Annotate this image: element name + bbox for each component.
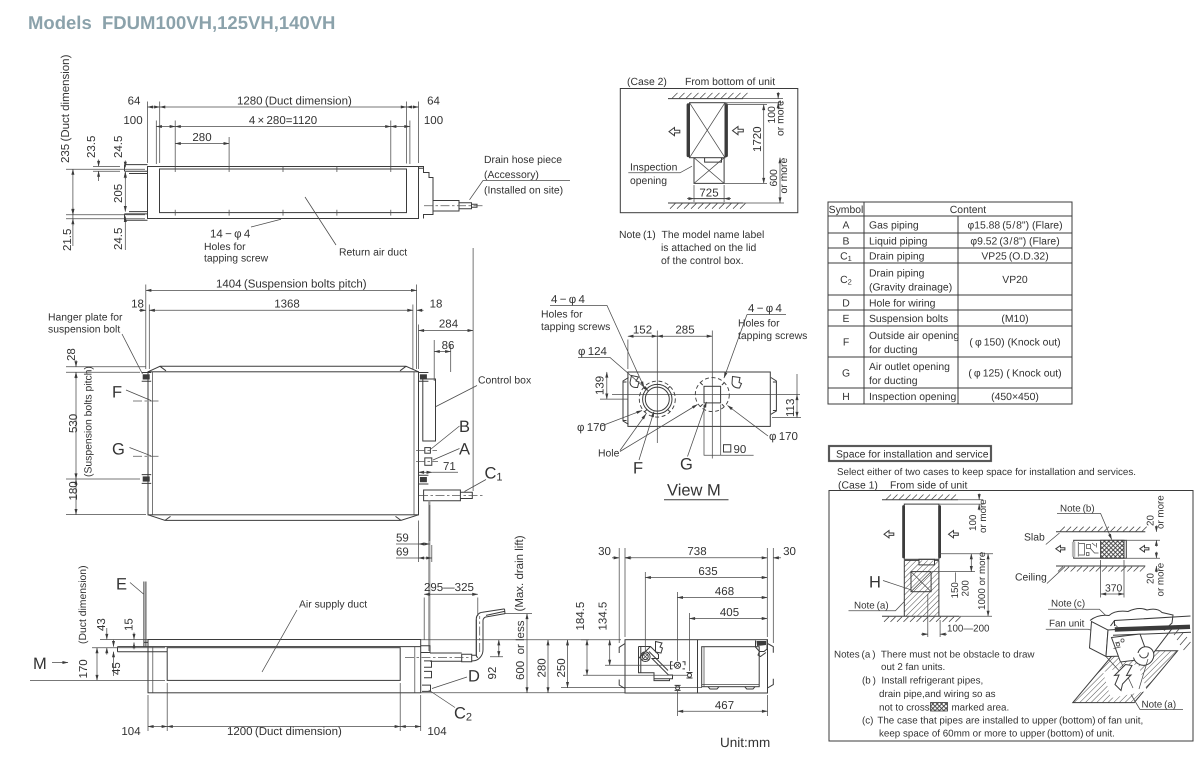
svg-text:From bottom of unit: From bottom of unit [685, 77, 775, 88]
svg-text:24.5: 24.5 [113, 136, 125, 158]
svg-text:Content: Content [950, 205, 987, 216]
svg-text:is attached on the lid: is attached on the lid [661, 243, 757, 254]
svg-text:69: 69 [396, 547, 409, 559]
svg-text:21.5: 21.5 [62, 229, 74, 251]
svg-text:or more: or more [1156, 562, 1167, 596]
svg-text:From side of unit: From side of unit [890, 481, 967, 492]
svg-text:1200 (Duct dimension): 1200 (Duct dimension) [227, 726, 342, 738]
svg-text:370: 370 [1105, 584, 1123, 595]
svg-text:for ducting: for ducting [869, 345, 918, 356]
svg-text:tapping screws: tapping screws [738, 331, 807, 342]
svg-text:φ 124: φ 124 [578, 346, 608, 358]
svg-text:(450×450): (450×450) [991, 392, 1039, 403]
svg-text:Drain hose piece: Drain hose piece [484, 155, 562, 166]
svg-text:(Suspension bolts pitch): (Suspension bolts pitch) [84, 366, 95, 477]
svg-text:100: 100 [123, 115, 142, 127]
svg-text:Drain piping: Drain piping [869, 252, 925, 263]
svg-text:B: B [459, 418, 470, 436]
svg-text:18: 18 [131, 299, 144, 311]
svg-text:280: 280 [537, 658, 549, 677]
svg-text:635: 635 [698, 566, 717, 578]
svg-text:tapping screws: tapping screws [541, 322, 610, 333]
svg-text:90: 90 [734, 444, 747, 456]
svg-text:1368: 1368 [274, 299, 300, 311]
svg-text:suspension bolt: suspension bolt [48, 325, 120, 336]
svg-text:View M: View M [667, 482, 721, 500]
svg-text:23.5: 23.5 [86, 136, 98, 158]
svg-text:Control box: Control box [478, 376, 532, 387]
svg-text:F: F [633, 460, 643, 478]
svg-text:250: 250 [556, 658, 568, 677]
svg-text:keep space of 60mm or more to: keep space of 60mm or more to upper (bot… [879, 729, 1115, 740]
svg-text:Gas piping: Gas piping [869, 221, 919, 232]
svg-text:64: 64 [427, 96, 440, 108]
svg-text:(M10): (M10) [1001, 314, 1028, 325]
svg-text:φ 170: φ 170 [577, 422, 606, 434]
svg-text:139: 139 [595, 376, 607, 395]
svg-text:28: 28 [66, 348, 78, 361]
svg-text:Drain piping: Drain piping [869, 269, 925, 280]
svg-text:405: 405 [720, 607, 739, 619]
svg-text:1404 (Suspension bolts pitch): 1404 (Suspension bolts pitch) [216, 279, 367, 291]
svg-text:A: A [843, 221, 850, 232]
svg-text:M: M [33, 655, 47, 673]
svg-text:( φ 125) ( Knock out): ( φ 125) ( Knock out) [968, 369, 1061, 380]
svg-text:C1: C1 [840, 252, 852, 264]
svg-text:D: D [842, 299, 850, 310]
svg-text:Air outlet opening: Air outlet opening [869, 362, 950, 373]
svg-text:Unit:mm: Unit:mm [720, 735, 770, 750]
svg-text:Models FDUM100VH,125VH,140VH: Models FDUM100VH,125VH,140VH [28, 12, 335, 33]
svg-text:104: 104 [427, 726, 447, 738]
svg-text:Fan unit: Fan unit [1049, 619, 1085, 630]
svg-text:134.5: 134.5 [598, 602, 610, 631]
svg-text:Air supply duct: Air supply duct [299, 600, 367, 611]
svg-text:or more: or more [779, 157, 790, 193]
svg-text:30: 30 [598, 546, 611, 558]
svg-text:B: B [843, 237, 850, 248]
svg-text:Suspension bolts: Suspension bolts [869, 314, 948, 325]
svg-text:180: 180 [68, 481, 80, 500]
svg-text:C2: C2 [840, 275, 852, 287]
svg-text:113: 113 [785, 399, 797, 417]
svg-text:64: 64 [128, 96, 141, 108]
svg-text:or more: or more [776, 100, 787, 136]
svg-text:530: 530 [68, 414, 80, 433]
svg-text:59: 59 [396, 533, 409, 545]
svg-text:Symbol: Symbol [829, 205, 864, 216]
svg-text:F: F [843, 338, 849, 349]
svg-text:725: 725 [699, 187, 718, 199]
svg-text:Note (b): Note (b) [1060, 504, 1095, 515]
svg-text:Slab: Slab [1024, 533, 1045, 544]
svg-text:tapping screw: tapping screw [204, 254, 269, 265]
svg-text:(Max. drain lift): (Max. drain lift) [514, 535, 526, 611]
svg-text:G: G [842, 369, 850, 380]
svg-text:104: 104 [121, 726, 141, 738]
svg-text:Hole: Hole [598, 449, 620, 460]
svg-text:Note (1) The model name label: Note (1) The model name label [619, 230, 764, 241]
svg-text:(Accessory): (Accessory) [484, 170, 539, 181]
svg-text:1720: 1720 [752, 126, 764, 152]
svg-text:H: H [869, 574, 881, 592]
svg-text:1280 (Duct dimension): 1280 (Duct dimension) [237, 96, 352, 108]
svg-text:235 (Duct dimension): 235 (Duct dimension) [60, 54, 72, 163]
svg-text:92: 92 [487, 667, 499, 680]
svg-text:(b ) Install refrigerant pipe: (b ) Install refrigerant pipes, [862, 676, 983, 687]
svg-text:Liquid piping: Liquid piping [869, 237, 928, 248]
svg-text:E: E [843, 314, 850, 325]
svg-text:200: 200 [961, 580, 972, 597]
svg-text:or more: or more [1156, 495, 1167, 529]
svg-text:φ15.88 (5 / 8") (Flare): φ15.88 (5 / 8") (Flare) [967, 221, 1062, 232]
svg-text:Holes for: Holes for [541, 310, 583, 321]
svg-text:Ceiling: Ceiling [1015, 573, 1047, 584]
svg-text:G: G [112, 441, 125, 459]
svg-text:18: 18 [430, 299, 443, 311]
svg-text:Space for installation and ser: Space for installation and service [836, 450, 989, 461]
svg-text:4 − φ 4: 4 − φ 4 [551, 294, 585, 306]
svg-text:Hanger plate for: Hanger plate for [48, 313, 123, 324]
svg-text:φ 170: φ 170 [769, 431, 798, 443]
svg-text:Holes for: Holes for [738, 319, 780, 330]
svg-text:F: F [112, 384, 122, 402]
svg-text:φ9.52 (3 / 8") (Flare): φ9.52 (3 / 8") (Flare) [970, 237, 1059, 248]
svg-text:284: 284 [439, 319, 459, 331]
svg-text:205: 205 [113, 184, 125, 203]
svg-text:170: 170 [78, 659, 90, 678]
svg-text:Select either of two cases to: Select either of two cases to keep space… [837, 467, 1136, 478]
svg-text:280: 280 [192, 132, 211, 144]
svg-text:(Installed on site): (Installed on site) [484, 186, 563, 197]
svg-text:24.5: 24.5 [113, 228, 125, 250]
svg-text:for ducting: for ducting [869, 376, 918, 387]
svg-text:15: 15 [124, 618, 136, 631]
svg-text:Note (a): Note (a) [854, 601, 889, 612]
svg-text:G: G [680, 456, 693, 474]
svg-text:45: 45 [111, 662, 123, 675]
svg-text:738: 738 [687, 546, 706, 558]
svg-text:(c) The case that pipes are i: (c) The case that pipes are installed to… [862, 716, 1143, 727]
svg-text:295—325: 295—325 [424, 582, 474, 594]
svg-text:43: 43 [96, 618, 108, 631]
svg-text:100: 100 [424, 115, 443, 127]
svg-text:152: 152 [633, 325, 652, 337]
svg-text:1000 or more: 1000 or more [977, 551, 988, 610]
svg-text:D: D [468, 668, 480, 686]
svg-text:drain pipe,and wiring so as: drain pipe,and wiring so as [879, 689, 996, 700]
svg-text:86: 86 [442, 340, 455, 352]
svg-text:out 2 fan units.: out 2 fan units. [881, 662, 945, 673]
svg-text:30: 30 [783, 546, 796, 558]
svg-text:(Case 1): (Case 1) [838, 481, 878, 492]
svg-text:4 × 280=1120: 4 × 280=1120 [249, 115, 317, 127]
svg-text:Return air duct: Return air duct [339, 248, 407, 259]
svg-text:(Gravity drainage): (Gravity drainage) [869, 283, 952, 294]
svg-text:14 − φ 4: 14 − φ 4 [210, 229, 251, 241]
svg-text:184.5: 184.5 [575, 602, 587, 631]
svg-text:(Duct dimension): (Duct dimension) [78, 565, 89, 644]
svg-text:467: 467 [715, 700, 734, 712]
svg-text:Inspection: Inspection [630, 163, 678, 174]
svg-text:VP20: VP20 [1002, 275, 1028, 286]
svg-text:285: 285 [675, 325, 694, 337]
svg-text:Note (c): Note (c) [1051, 599, 1085, 610]
svg-text:150—: 150— [950, 572, 961, 598]
svg-text:of the control box.: of the control box. [661, 256, 744, 267]
svg-text:not to cross: not to cross [879, 703, 930, 714]
svg-text:468: 468 [715, 586, 734, 598]
svg-text:E: E [116, 576, 127, 594]
svg-text:600 or less: 600 or less [515, 620, 527, 680]
svg-text:VP25 (O.D.32): VP25 (O.D.32) [981, 252, 1048, 263]
svg-text:Holes for: Holes for [204, 242, 246, 253]
svg-text:4 − φ 4: 4 − φ 4 [748, 303, 782, 315]
svg-text:(Case 2): (Case 2) [627, 77, 667, 88]
svg-text:Outside air opening: Outside air opening [869, 331, 959, 342]
svg-text:71: 71 [443, 461, 456, 473]
svg-text:A: A [459, 441, 470, 459]
svg-text:H: H [842, 392, 850, 403]
svg-text:Notes (a ) There must not be: Notes (a ) There must not be obstacle to… [834, 650, 1035, 661]
svg-text:marked area.: marked area. [952, 703, 1010, 714]
svg-text:Hole for wiring: Hole for wiring [869, 299, 936, 310]
svg-text:Note (a): Note (a) [1142, 700, 1177, 711]
svg-text:100—200: 100—200 [947, 624, 990, 635]
svg-text:or more: or more [978, 499, 989, 533]
svg-text:( φ 150) (Knock out): ( φ 150) (Knock out) [969, 338, 1060, 349]
svg-text:opening: opening [630, 176, 667, 187]
svg-text:Inspection opening: Inspection opening [869, 392, 956, 403]
